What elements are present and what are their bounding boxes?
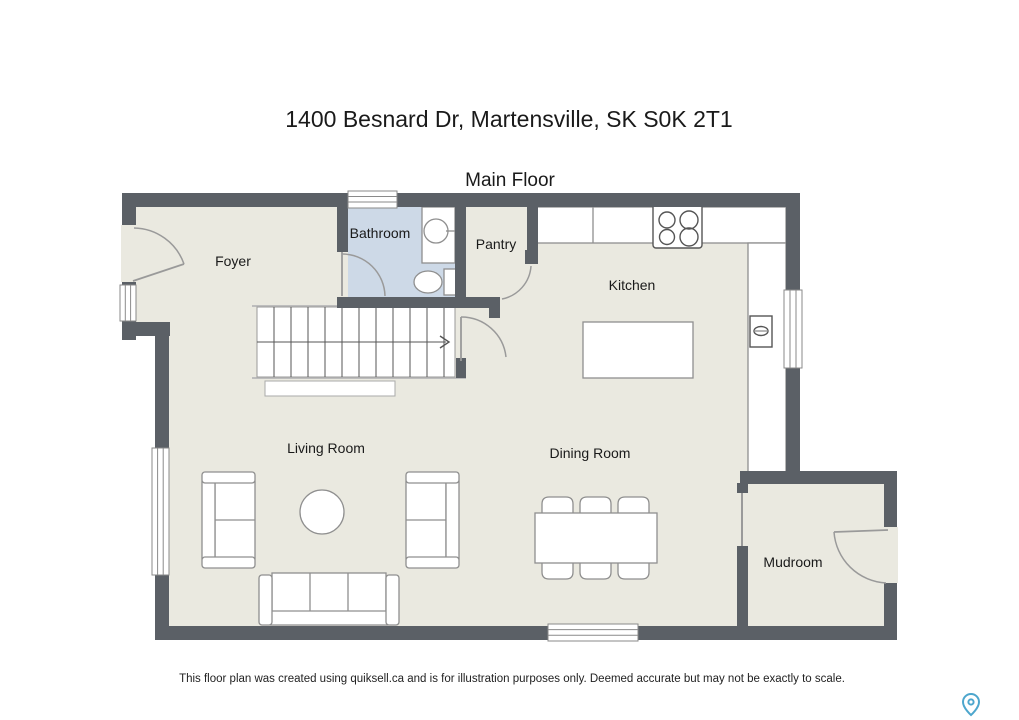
wall-hall-stub — [489, 297, 500, 318]
dining-table — [535, 513, 657, 563]
window — [348, 191, 397, 208]
sofa-back — [267, 611, 391, 625]
dining-chair — [618, 562, 649, 579]
front-door-opening — [121, 225, 137, 282]
window-living-left — [152, 448, 169, 575]
window — [548, 624, 638, 641]
loveseat-back — [446, 481, 459, 559]
dining-furniture — [535, 497, 657, 579]
dining-chair — [580, 497, 611, 514]
wall-bathroom-left — [337, 200, 348, 252]
loveseat-left — [202, 472, 255, 568]
toilet-tank — [444, 269, 456, 295]
bathroom-vanity — [422, 207, 455, 263]
wall-mudroom-left-stub — [737, 483, 748, 493]
window-foyer-left — [120, 285, 136, 321]
stair-landing — [265, 381, 395, 396]
coffee-table — [300, 490, 344, 534]
dining-chair — [580, 562, 611, 579]
room-label-bathroom: Bathroom — [350, 225, 411, 241]
dining-chair — [542, 497, 573, 514]
room-label-pantry: Pantry — [476, 236, 516, 252]
wall-hall-top — [337, 297, 500, 308]
loveseat-back — [202, 481, 215, 559]
room-label-mudroom: Mudroom — [763, 554, 822, 570]
dining-chair — [618, 497, 649, 514]
wall-pantry-stub — [525, 250, 538, 264]
loveseat-armrest — [406, 472, 459, 483]
sofa-armrest — [386, 575, 399, 625]
loveseat-right — [406, 472, 459, 568]
disclaimer-text: This floor plan was created using quikse… — [179, 673, 845, 685]
kitchen-island — [583, 322, 693, 378]
map-pin-icon — [963, 694, 979, 715]
window — [120, 285, 136, 321]
window-bathroom-top — [348, 191, 397, 208]
toilet-icon — [414, 271, 442, 293]
floor-label: Main Floor — [465, 170, 555, 191]
wall-bottom — [155, 626, 897, 640]
loveseat-armrest — [202, 557, 255, 568]
room-label-living-room: Living Room — [287, 440, 365, 456]
mudroom-door-opening — [883, 527, 898, 583]
wall-bathroom-pantry — [455, 200, 466, 300]
dining-chair — [542, 562, 573, 579]
map-pin-hole — [968, 699, 973, 704]
floor-plan-page: 1400 Besnard Dr, Martensville, SK S0K 2T… — [0, 0, 1019, 720]
window — [152, 448, 169, 575]
room-label-kitchen: Kitchen — [609, 277, 656, 293]
page-title: 1400 Besnard Dr, Martensville, SK S0K 2T… — [285, 106, 732, 132]
window-dining-bottom — [548, 624, 638, 641]
room-label-foyer: Foyer — [215, 253, 251, 269]
room-label-dining-room: Dining Room — [550, 445, 631, 461]
sofa — [259, 573, 399, 625]
kitchen-counter-right — [748, 243, 786, 473]
wall-mudroom-top — [740, 471, 897, 484]
sofa-seat — [272, 573, 386, 614]
loveseat-armrest — [202, 472, 255, 483]
wall-pantry-right — [527, 200, 538, 257]
loveseat-armrest — [406, 557, 459, 568]
wall-mudroom-left — [737, 546, 748, 626]
floor-plan-image: 1400 Besnard Dr, Martensville, SK S0K 2T… — [0, 0, 1019, 720]
window-kitchen-right — [784, 290, 802, 368]
window — [784, 290, 802, 368]
sofa-armrest — [259, 575, 272, 625]
